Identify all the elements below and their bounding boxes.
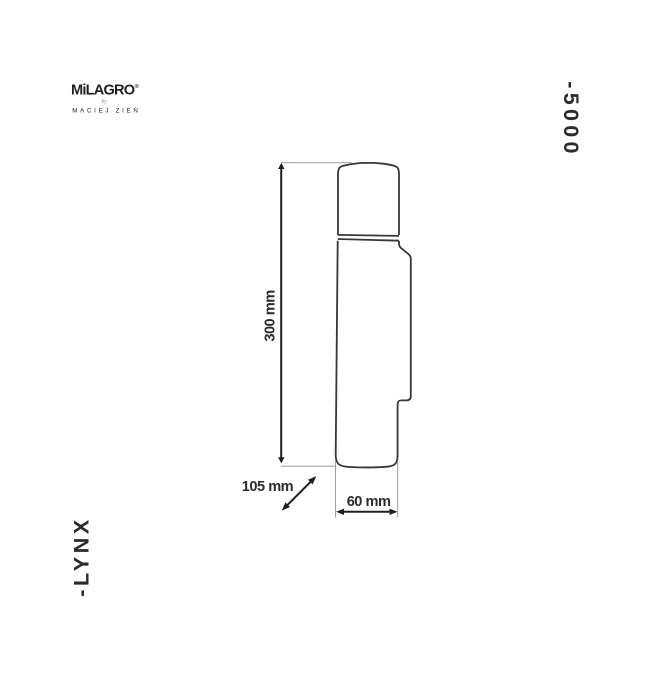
svg-text:105 mm: 105 mm (242, 479, 294, 495)
svg-text:by: by (102, 99, 108, 105)
svg-text:MACIEJ ZIEŃ: MACIEJ ZIEŃ (72, 108, 140, 115)
svg-text:-5000: -5000 (559, 81, 583, 158)
svg-text:60 mm: 60 mm (347, 494, 391, 510)
svg-text:300 mm: 300 mm (263, 290, 279, 342)
svg-text:®: ® (135, 83, 139, 90)
svg-text:-LYNX: -LYNX (69, 516, 93, 597)
svg-text:MiLAGRO: MiLAGRO (71, 83, 135, 99)
